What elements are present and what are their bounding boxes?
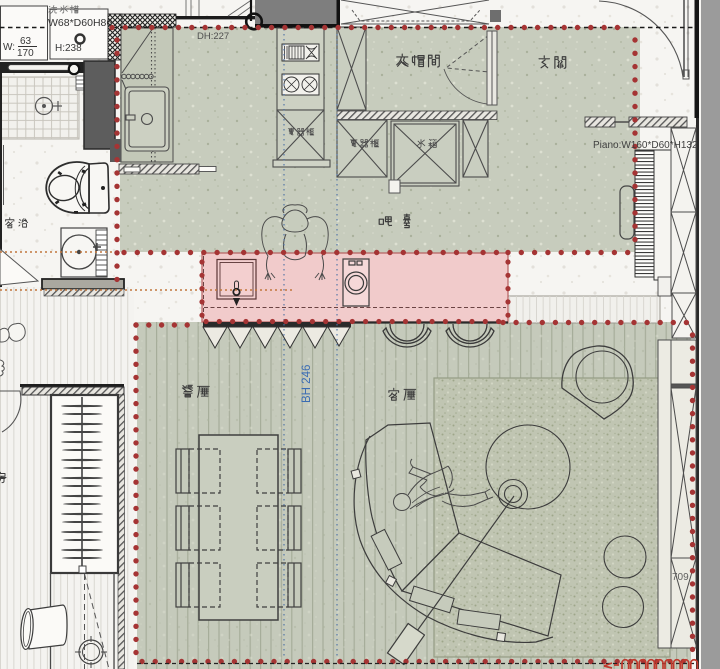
svg-text:DH:227: DH:227 bbox=[197, 31, 229, 42]
svg-text:Piano:W160*D60*H132: Piano:W160*D60*H132 bbox=[593, 140, 698, 151]
svg-text:W:: W: bbox=[3, 42, 15, 53]
svg-text:709: 709 bbox=[672, 572, 689, 583]
svg-text:W68*D60H86: W68*D60H86 bbox=[48, 17, 112, 29]
svg-text:BH 246: BH 246 bbox=[301, 365, 313, 403]
svg-text:H:238: H:238 bbox=[55, 43, 82, 54]
svg-text:63: 63 bbox=[20, 36, 32, 47]
svg-text:170: 170 bbox=[17, 48, 34, 59]
